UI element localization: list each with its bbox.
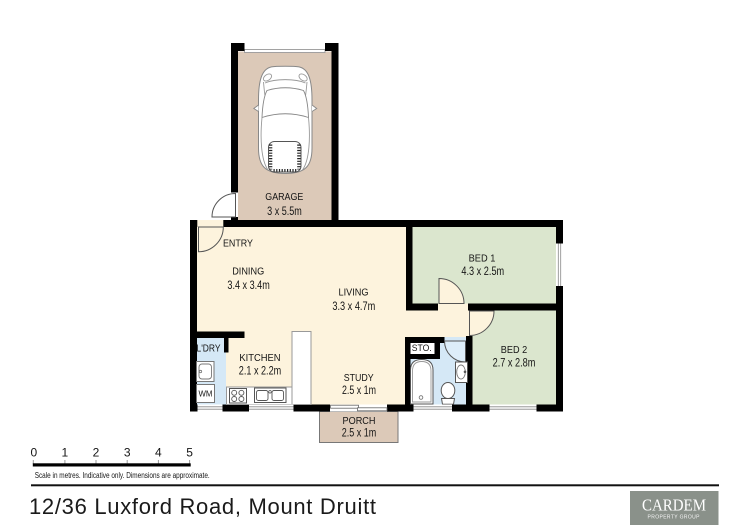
svg-text:5: 5 xyxy=(186,446,193,460)
svg-text:DINING: DINING xyxy=(232,267,264,278)
svg-text:2.7 x 2.8m: 2.7 x 2.8m xyxy=(493,358,536,370)
svg-text:KITCHEN: KITCHEN xyxy=(239,353,280,364)
svg-text:WM: WM xyxy=(199,389,213,399)
svg-text:L'DRY: L'DRY xyxy=(197,344,221,355)
svg-text:2.1 x 2.2m: 2.1 x 2.2m xyxy=(239,366,281,378)
svg-text:4.3 x 2.5m: 4.3 x 2.5m xyxy=(461,266,504,278)
svg-text:3: 3 xyxy=(124,446,131,460)
svg-text:STO.: STO. xyxy=(412,343,432,353)
svg-text:2: 2 xyxy=(93,446,100,460)
svg-text:PORCH: PORCH xyxy=(343,416,376,427)
svg-text:BED 1: BED 1 xyxy=(469,254,496,265)
svg-text:LIVING: LIVING xyxy=(339,288,369,299)
svg-text:CARDEM: CARDEM xyxy=(642,496,706,515)
svg-text:3.3 x 4.7m: 3.3 x 4.7m xyxy=(332,301,375,313)
svg-text:ENTRY: ENTRY xyxy=(223,239,253,250)
svg-text:2.5 x 1m: 2.5 x 1m xyxy=(342,428,377,440)
svg-text:2.5 x 1m: 2.5 x 1m xyxy=(342,385,376,397)
svg-text:12/36 Luxford Road, Mount Drui: 12/36 Luxford Road, Mount Druitt xyxy=(29,494,377,519)
svg-text:0: 0 xyxy=(31,446,38,460)
svg-text:PROPERTY GROUP: PROPERTY GROUP xyxy=(648,515,701,521)
svg-text:4: 4 xyxy=(155,446,162,460)
svg-text:3 x 5.5m: 3 x 5.5m xyxy=(267,206,302,218)
svg-text:BED 2: BED 2 xyxy=(501,345,528,356)
svg-text:Scale in metres. Indicative on: Scale in metres. Indicative only. Dimens… xyxy=(35,471,210,480)
svg-text:GARAGE: GARAGE xyxy=(265,192,303,203)
svg-text:STUDY: STUDY xyxy=(344,373,374,384)
svg-text:1: 1 xyxy=(62,446,69,460)
svg-text:3.4 x 3.4m: 3.4 x 3.4m xyxy=(227,280,269,292)
